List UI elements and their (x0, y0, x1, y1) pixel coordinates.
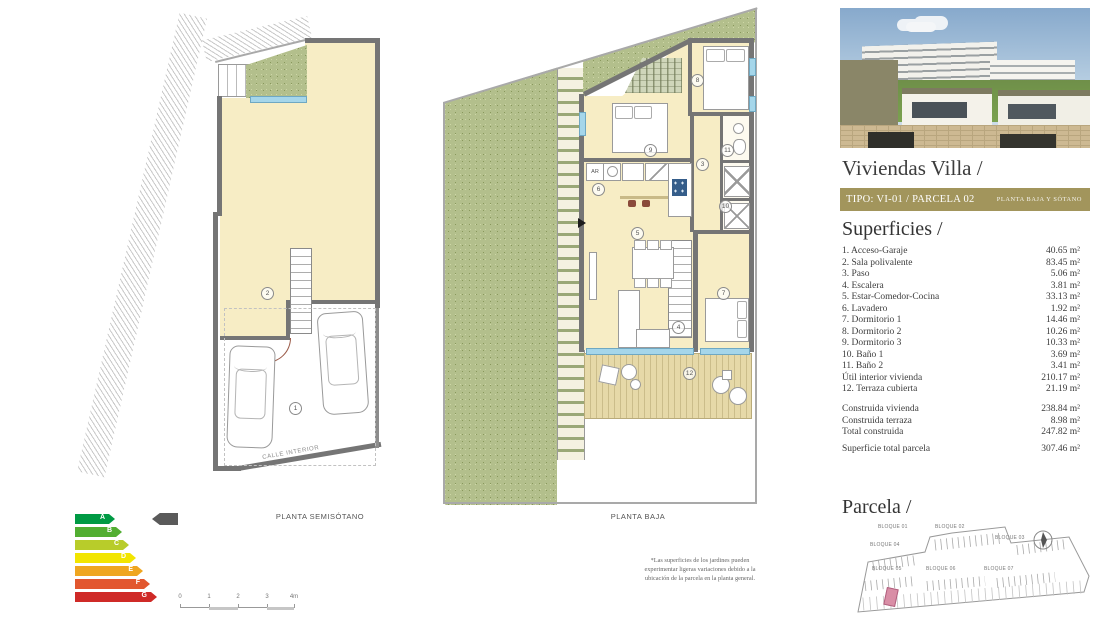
plan-caption-baja: PLANTA BAJA (578, 512, 698, 521)
terrace-chair-icon (621, 364, 637, 380)
garage-door (868, 132, 914, 148)
lounger-icon (729, 387, 747, 405)
energy-pointer-icon (152, 513, 178, 525)
wall-segment (213, 212, 218, 470)
window-strip (579, 112, 586, 136)
sofa-icon (636, 329, 670, 348)
table-row: 5. Estar-Comedor-Cocina33.13 m² (842, 292, 1080, 304)
chair-icon (634, 240, 646, 250)
scale-tick-label: 0 (178, 594, 181, 600)
pillow-icon (726, 49, 745, 62)
superficies-table: 1. Acceso-Garaje40.65 m² 2. Sala polival… (842, 246, 1080, 396)
chair-icon (660, 240, 672, 250)
room-number-6: 6 (592, 183, 605, 196)
room-number-2: 2 (261, 287, 274, 300)
site-plan: BLOQUE 01 BLOQUE 02 BLOQUE 03 BLOQUE 04 … (855, 524, 1093, 620)
row-value: 238.84 m² (1041, 404, 1080, 416)
villa-facade (840, 60, 898, 132)
row-value: 3.81 m² (1051, 281, 1080, 293)
energy-band-e: E (75, 566, 143, 576)
boundary-line (443, 502, 757, 504)
energy-band-b: B (75, 527, 122, 537)
row-value: 10.33 m² (1046, 338, 1080, 350)
table-row: 9. Dormitorio 310.33 m² (842, 338, 1080, 350)
parcela-heading: Parcela / (842, 496, 911, 519)
car-icon (226, 345, 276, 449)
room-number-4: 4 (672, 321, 685, 334)
row-label: 7. Dormitorio 1 (842, 315, 901, 327)
row-value: 10.26 m² (1046, 327, 1080, 339)
table-row: Construida vivienda238.84 m² (842, 404, 1080, 416)
type-banner: TIPO: VI-01 / PARCELA 02 PLANTA BAJA Y S… (840, 188, 1090, 211)
row-value: 3.41 m² (1051, 361, 1080, 373)
toilet-icon (733, 139, 746, 155)
scale-tick-label: 4m (290, 594, 298, 600)
energy-band-f: F (75, 579, 150, 589)
row-label: Total construida (842, 427, 903, 439)
bloque-label: BLOQUE 02 (935, 524, 965, 530)
room-number-10: 10 (719, 200, 732, 213)
scale-tick-label: 2 (236, 594, 239, 600)
room-number-1: 1 (289, 402, 302, 415)
wall-segment (688, 38, 754, 43)
chair-icon (647, 240, 659, 250)
terrace-table-icon (598, 364, 619, 385)
bed-icon (703, 46, 749, 110)
sink-icon (607, 166, 618, 177)
stool-icon (642, 200, 650, 207)
table-row: 8. Dormitorio 210.26 m² (842, 327, 1080, 339)
row-value: 3.69 m² (1051, 350, 1080, 362)
room-number-3: 3 (696, 158, 709, 171)
superficies-heading: Superficies / (842, 218, 943, 241)
wall-segment (693, 230, 754, 234)
energy-band-c: C (75, 540, 129, 550)
bar-counter (620, 196, 668, 199)
table-row: Total construida247.82 m² (842, 427, 1080, 439)
row-value: 247.82 m² (1041, 427, 1080, 439)
row-label: Construida terraza (842, 416, 912, 428)
room-number-12: 12 (683, 367, 696, 380)
table-row: Útil interior vivienda210.17 m² (842, 373, 1080, 385)
boundary-line (443, 102, 445, 504)
room-number-7: 7 (717, 287, 730, 300)
sliding-door (586, 348, 694, 355)
basin-icon (733, 123, 744, 134)
scale-tick (238, 604, 239, 608)
car-roof (325, 334, 359, 386)
row-value: 1.92 m² (1051, 304, 1080, 316)
boundary-line (755, 8, 757, 503)
plan-baja: AR 3 4 5 6 7 8 9 10 11 (430, 0, 790, 560)
row-label: 4. Escalera (842, 281, 884, 293)
energy-band-d: D (75, 553, 136, 563)
row-label: Superficie total parcela (842, 444, 930, 456)
bloque-label: BLOQUE 05 (872, 566, 902, 572)
table-row: 3. Paso5.06 m² (842, 269, 1080, 281)
plan-semisotano: 2 1 CALLE INTERIOR PLANTA SEMISÓTANO (0, 0, 430, 540)
row-label: 2. Sala polivalente (842, 258, 912, 270)
villa-window (1008, 104, 1056, 119)
row-label: Construida vivienda (842, 404, 919, 416)
dining-table-icon (632, 247, 674, 279)
bloque-label: BLOQUE 03 (995, 535, 1025, 541)
row-value: 33.13 m² (1046, 292, 1080, 304)
energy-band-g: G (75, 592, 157, 602)
pillow-icon (737, 301, 747, 319)
room-number-9: 9 (644, 144, 657, 157)
terrace-chair-icon (630, 379, 641, 390)
sala-polivalente-floor (305, 43, 377, 100)
garage-door (1000, 134, 1056, 148)
pillow-icon (634, 106, 652, 119)
wall-segment (723, 160, 750, 163)
table-row: 11. Baño 23.41 m² (842, 361, 1080, 373)
row-label: 12. Terraza cubierta (842, 384, 917, 396)
site-boundary-hatch (77, 13, 207, 478)
scale-tick-label: 3 (265, 594, 268, 600)
row-value: 14.46 m² (1046, 315, 1080, 327)
room-number-5: 5 (631, 227, 644, 240)
window-strip (749, 96, 756, 112)
row-label: 9. Dormitorio 3 (842, 338, 901, 350)
row-label: 6. Lavadero (842, 304, 887, 316)
energy-band-a: A (75, 514, 115, 524)
room-number-11: 11 (721, 144, 734, 157)
wall-segment (693, 230, 698, 352)
row-label: 5. Estar-Comedor-Cocina (842, 292, 939, 304)
wall-segment (310, 300, 377, 304)
plan-sheet: { "panel": { "title": "Viviendas Villa /… (0, 0, 1110, 623)
chair-icon (634, 278, 646, 288)
car-roof (234, 368, 267, 419)
construida-table: Construida vivienda238.84 m² Construida … (842, 404, 1080, 439)
table-row: 4. Escalera3.81 m² (842, 281, 1080, 293)
row-label: 1. Acceso-Garaje (842, 246, 907, 258)
row-label: 10. Baño 1 (842, 350, 883, 362)
pillow-icon (737, 320, 747, 338)
wall-segment (375, 38, 380, 308)
wall-segment (749, 230, 754, 352)
table-row: 2. Sala polivalente83.45 m² (842, 258, 1080, 270)
table-row: 1. Acceso-Garaje40.65 m² (842, 246, 1080, 258)
scale-tick (294, 604, 295, 608)
table-row: 10. Baño 13.69 m² (842, 350, 1080, 362)
window-strip (250, 96, 307, 103)
bloque-label: BLOQUE 01 (878, 524, 908, 530)
bloque-label: BLOQUE 04 (870, 542, 900, 548)
page-title: Viviendas Villa / (842, 156, 1090, 181)
row-label: 11. Baño 2 (842, 361, 883, 373)
pillow-icon (615, 106, 633, 119)
parcel-total-row: Superficie total parcela 307.46 m² (842, 444, 1080, 456)
row-value: 40.65 m² (1046, 246, 1080, 258)
row-value: 21.19 m² (1046, 384, 1080, 396)
table-row: 7. Dormitorio 114.46 m² (842, 315, 1080, 327)
terrace-side-table-icon (722, 370, 732, 380)
row-value: 83.45 m² (1046, 258, 1080, 270)
row-label: Útil interior vivienda (842, 373, 922, 385)
plan-caption-semisotano: PLANTA SEMISÓTANO (250, 512, 390, 521)
hero-photo (840, 8, 1090, 148)
bed-icon (705, 298, 749, 342)
table-row: Construida terraza8.98 m² (842, 416, 1080, 428)
wall-segment (720, 116, 723, 230)
row-label: 8. Dormitorio 2 (842, 327, 901, 339)
bloque-label: BLOQUE 07 (984, 566, 1014, 572)
kitchen-ar-label: AR (591, 169, 599, 175)
type-banner-label: TIPO: VI-01 / PARCELA 02 (840, 194, 975, 205)
bed-icon (612, 103, 668, 153)
room-number-8: 8 (691, 74, 704, 87)
entry-arrow (578, 218, 586, 228)
bloque-label: BLOQUE 06 (926, 566, 956, 572)
window-strip (749, 58, 756, 76)
sliding-door (700, 348, 750, 355)
scale-segment (209, 607, 238, 610)
scale-segment (267, 607, 294, 610)
row-value: 5.06 m² (1051, 269, 1080, 281)
row-value: 8.98 m² (1051, 416, 1080, 428)
scale-tick (180, 604, 181, 608)
shower-icon (724, 166, 750, 197)
table-row: 12. Terraza cubierta21.19 m² (842, 384, 1080, 396)
row-value: 307.46 m² (1041, 444, 1080, 456)
table-row: 6. Lavadero1.92 m² (842, 304, 1080, 316)
chair-icon (647, 278, 659, 288)
tv-unit-icon (589, 252, 597, 300)
wall-segment (217, 96, 222, 214)
chair-icon (660, 278, 672, 288)
wall-segment (584, 158, 692, 162)
cloud (906, 22, 936, 32)
villa-window (912, 102, 967, 118)
hob-icon (672, 179, 687, 196)
light-well (218, 64, 250, 97)
scale-tick-label: 1 (207, 594, 210, 600)
kitchen-ar-unit: AR (586, 163, 604, 181)
row-value: 210.17 m² (1041, 373, 1080, 385)
pillow-icon (706, 49, 725, 62)
scale-bar: 0 1 2 3 4m (170, 592, 310, 612)
stool-icon (628, 200, 636, 207)
kitchen-counter (622, 163, 644, 181)
wall-segment (305, 38, 380, 43)
car-icon (316, 311, 369, 416)
row-label: 3. Paso (842, 269, 869, 281)
garden-main (445, 60, 557, 505)
floor-banner-label: PLANTA BAJA Y SÓTANO (997, 196, 1090, 203)
garden-footnote: *Las superficies de los jardines pueden … (638, 556, 762, 583)
info-panel: Viviendas Villa / TIPO: VI-01 / PARCELA … (840, 0, 1090, 623)
